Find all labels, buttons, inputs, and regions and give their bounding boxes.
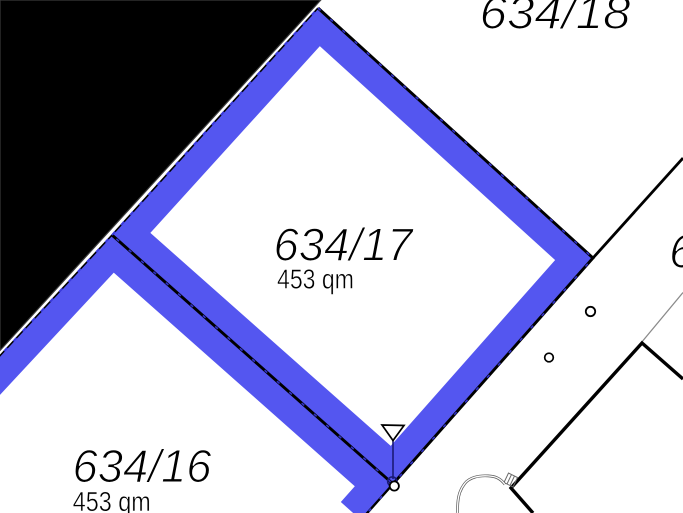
svg-text:453 qm: 453 qm — [73, 486, 151, 513]
svg-text:453 qm: 453 qm — [277, 264, 354, 295]
svg-text:634/18: 634/18 — [480, 0, 631, 39]
svg-text:6: 6 — [669, 226, 683, 279]
svg-text:634/16: 634/16 — [73, 440, 212, 492]
